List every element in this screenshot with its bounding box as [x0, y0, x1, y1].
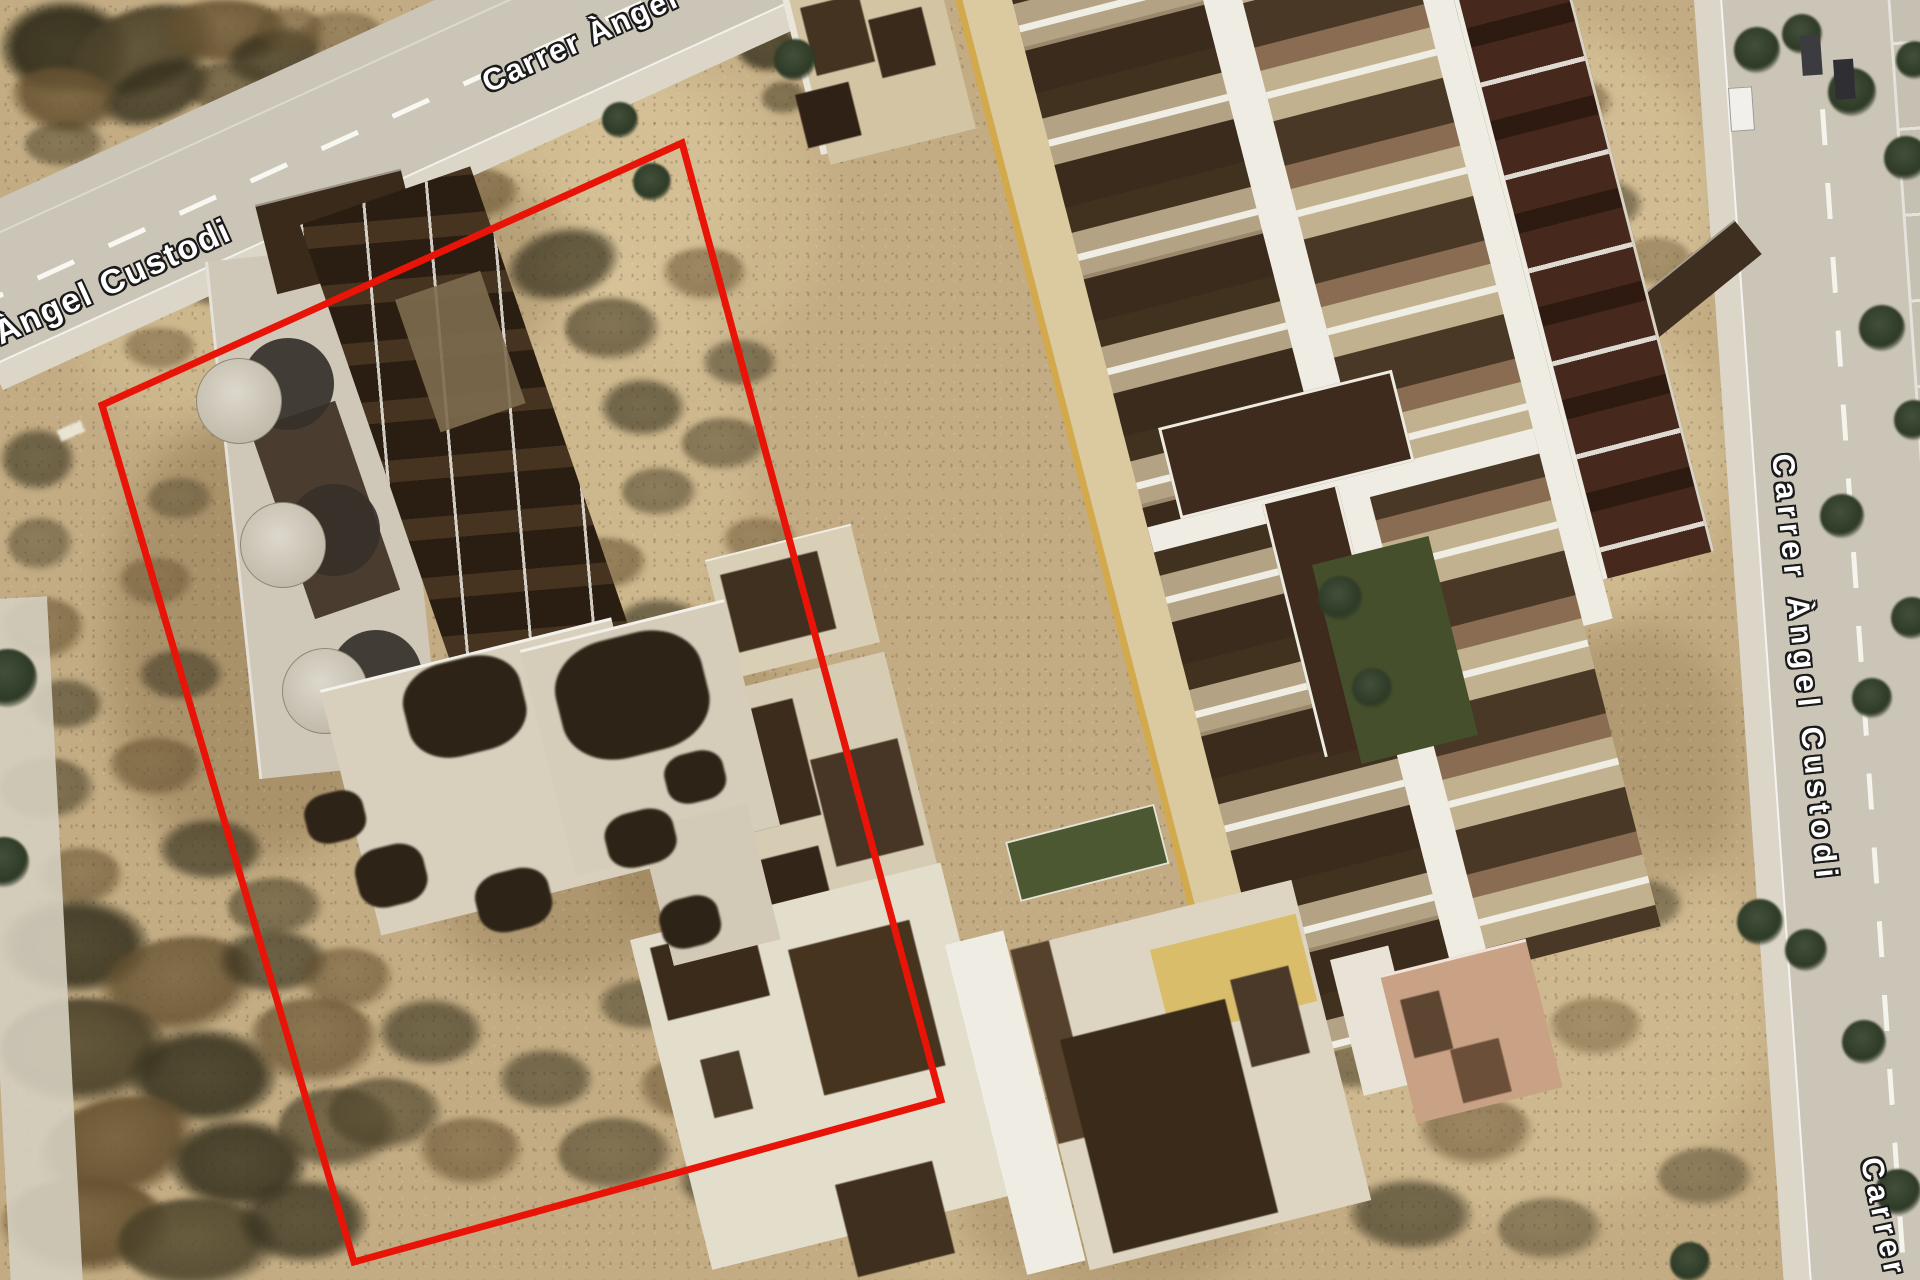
tree-icon [1852, 678, 1892, 718]
car [1800, 35, 1823, 76]
tree-icon [1894, 400, 1920, 440]
tree-icon [1820, 494, 1864, 538]
tree-icon [1859, 305, 1905, 351]
tree-icon [1896, 41, 1920, 79]
tree-icon [1734, 27, 1780, 73]
tree-icon [1891, 597, 1920, 639]
tree-icon [0, 649, 37, 707]
tree-icon [1785, 929, 1827, 971]
tree-icon [633, 163, 671, 201]
car [1833, 59, 1856, 100]
tree-icon [1670, 1242, 1710, 1280]
tree-layer [0, 0, 1920, 1280]
tree-icon [602, 102, 638, 138]
tree-icon [1842, 1020, 1886, 1064]
map-canvas[interactable]: Carrer Àngel Custodi Carrer Àngel Custod… [0, 0, 1920, 1280]
tree-icon [1352, 668, 1392, 708]
tree-icon [0, 837, 29, 887]
tree-icon [774, 39, 816, 81]
tree-icon [1884, 136, 1920, 180]
tree-icon [1737, 899, 1783, 945]
tree-icon [1318, 576, 1362, 620]
car [1728, 86, 1755, 132]
